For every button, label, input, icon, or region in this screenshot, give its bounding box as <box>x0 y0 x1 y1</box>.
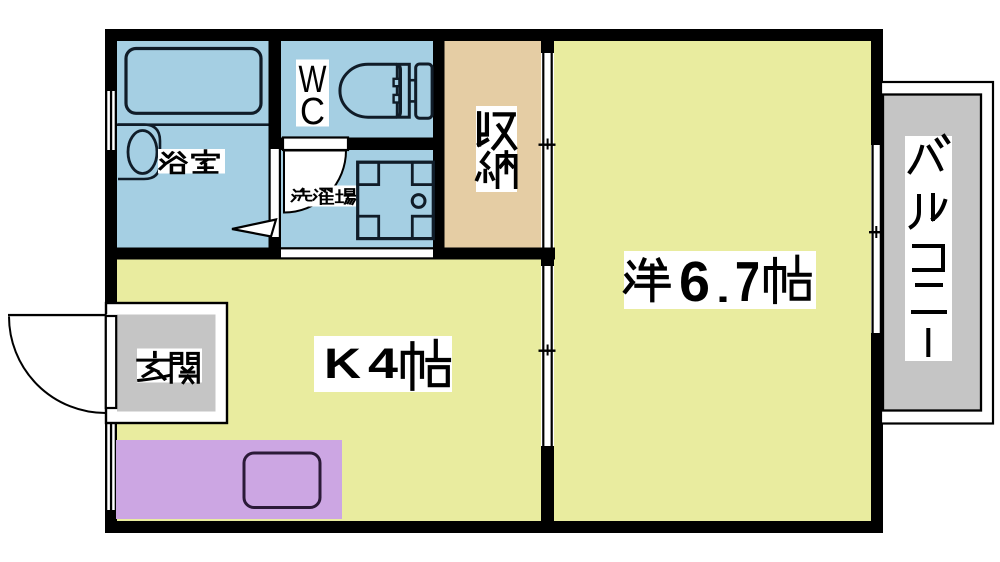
svg-text:C: C <box>300 91 325 133</box>
svg-text:K: K <box>324 341 361 388</box>
svg-text:6: 6 <box>679 250 710 314</box>
svg-text:7: 7 <box>735 250 760 314</box>
svg-text:4: 4 <box>368 341 398 388</box>
